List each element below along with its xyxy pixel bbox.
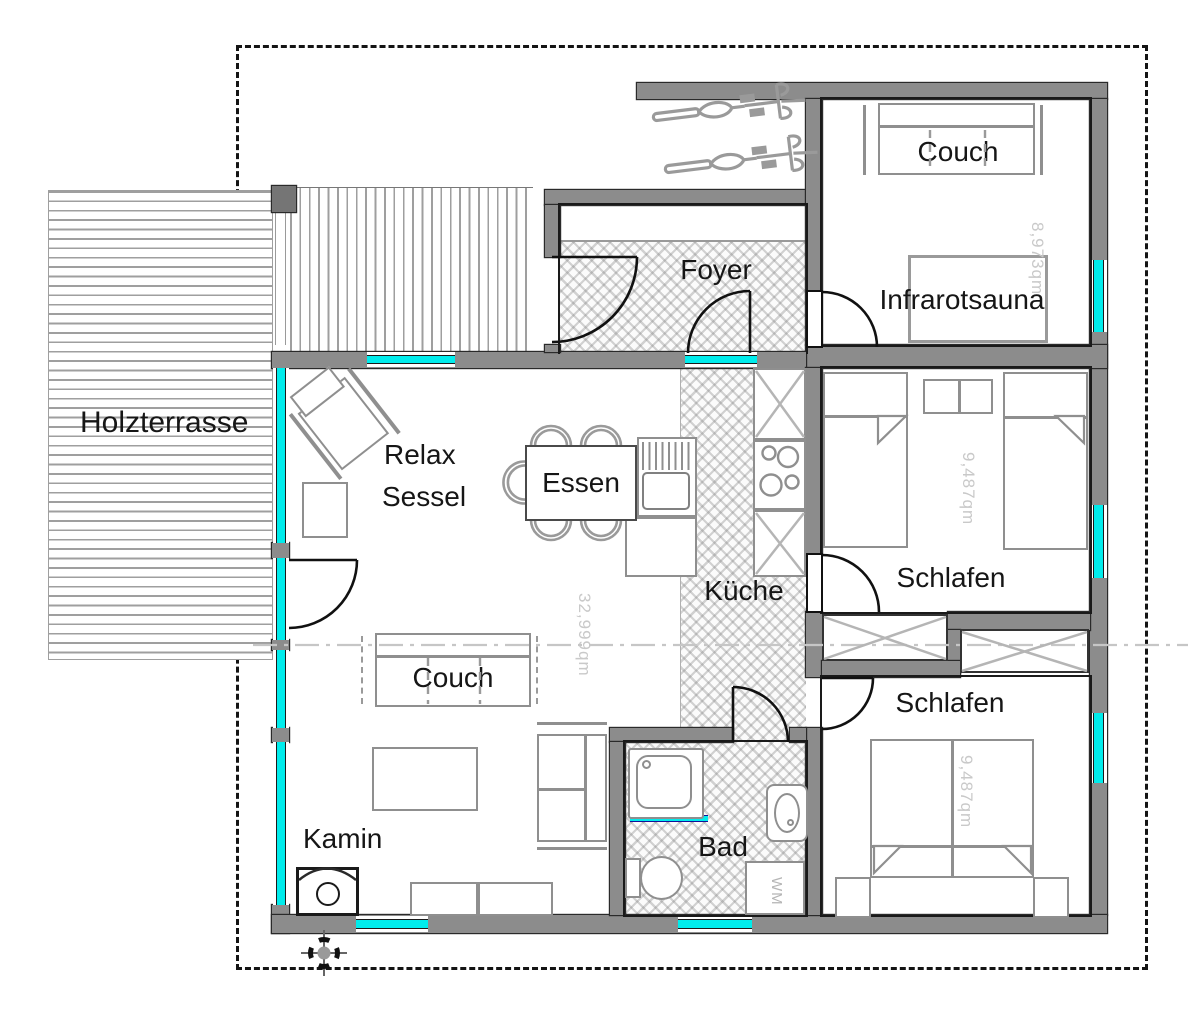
kitchen-sink-unit bbox=[637, 437, 697, 517]
covered-terrace-deck bbox=[290, 187, 533, 353]
sauna-couch-armrest bbox=[863, 105, 866, 175]
sink-drainboard bbox=[642, 442, 692, 470]
furniture-label-sauna-couch: Couch bbox=[918, 137, 999, 168]
room-label-holzterrasse: Holzterrasse bbox=[80, 406, 248, 439]
terrace-corner-post bbox=[272, 186, 296, 212]
window-sauna bbox=[1090, 260, 1107, 332]
room-label-foyer: Foyer bbox=[680, 255, 752, 286]
cooktop bbox=[753, 440, 806, 510]
wall-sauna-bottom bbox=[806, 345, 1107, 368]
room-label-kueche: Küche bbox=[704, 576, 783, 607]
coffee-table bbox=[372, 747, 478, 811]
couch-armrest bbox=[536, 636, 538, 704]
window-schlafen-unten bbox=[1090, 713, 1107, 783]
room-label-bad: Bad bbox=[698, 832, 748, 863]
tv-line bbox=[537, 722, 607, 725]
window-left-3 bbox=[273, 742, 289, 905]
tv-sideboard bbox=[537, 734, 607, 842]
window-left-2 bbox=[273, 650, 289, 728]
side-table bbox=[302, 482, 348, 538]
nightstand bbox=[1033, 877, 1069, 918]
wall-post-a bbox=[272, 543, 289, 558]
terrace-edge-post bbox=[275, 212, 286, 345]
nightstand bbox=[923, 379, 993, 414]
floor-plan: Holzterrasse Foyer Couch Infrarotsauna R… bbox=[0, 0, 1200, 1019]
toilet-tank bbox=[625, 858, 641, 898]
tv-line bbox=[537, 847, 607, 850]
area-label-infrarotsauna: 8,973qm bbox=[1027, 222, 1047, 295]
zone-label-kamin: Kamin bbox=[303, 824, 382, 855]
wall-niche-left bbox=[806, 612, 822, 677]
room-label-schlafen-unten: Schlafen bbox=[896, 688, 1005, 719]
wall-post-c bbox=[272, 728, 289, 742]
couch-armrest bbox=[361, 636, 363, 704]
window-schlafen-oben bbox=[1090, 505, 1107, 578]
sink-basin bbox=[642, 472, 690, 510]
furniture-label-relax: Relax bbox=[384, 440, 456, 471]
window-living-bottom bbox=[356, 916, 428, 932]
kitchen-counter bbox=[625, 517, 697, 577]
shower bbox=[628, 748, 704, 819]
single-bed bbox=[823, 372, 908, 548]
appliance-label-wm: WM bbox=[768, 877, 785, 906]
wall-niche-top bbox=[948, 612, 1090, 630]
kitchen-tall-cabinet bbox=[753, 368, 806, 440]
kitchen-base-cabinet bbox=[753, 510, 806, 577]
toilet-bowl bbox=[640, 856, 683, 900]
zone-label-essen: Essen bbox=[542, 468, 620, 499]
room-label-infrarotsauna: Infrarotsauna bbox=[880, 285, 1045, 316]
room-label-schlafen-oben: Schlafen bbox=[897, 563, 1006, 594]
single-bed bbox=[1003, 372, 1088, 550]
double-bed bbox=[870, 739, 1034, 878]
washbasin bbox=[766, 784, 808, 842]
fireplace bbox=[296, 867, 359, 916]
sauna-couch-armrest bbox=[1040, 105, 1043, 175]
window-living-top bbox=[367, 352, 455, 367]
window-bad bbox=[678, 916, 752, 932]
wardrobe bbox=[960, 629, 1089, 673]
nightstand bbox=[835, 877, 871, 918]
wall-post-b bbox=[272, 640, 289, 650]
area-label-wohnen: 32,999qm bbox=[574, 593, 594, 677]
wardrobe bbox=[822, 614, 948, 661]
furniture-label-couch: Couch bbox=[413, 663, 494, 694]
area-label-schlafen-unten: 9,487qm bbox=[956, 755, 976, 828]
bench bbox=[410, 882, 478, 916]
area-label-schlafen-oben: 9,487qm bbox=[958, 452, 978, 525]
bench bbox=[478, 882, 553, 916]
entrance-door-glass bbox=[685, 352, 757, 367]
furniture-label-sessel: Sessel bbox=[382, 482, 466, 513]
terrace-door-glass bbox=[273, 558, 289, 640]
